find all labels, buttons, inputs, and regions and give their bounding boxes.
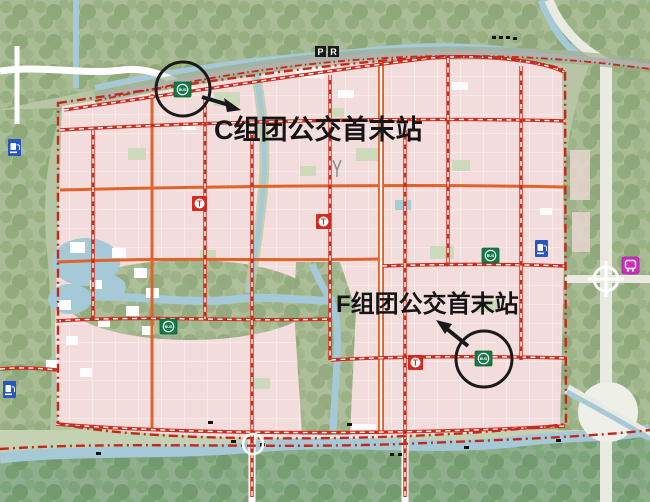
bus-station-icon-east: BUS bbox=[482, 248, 499, 263]
tram-station-label: T bbox=[321, 218, 326, 227]
planning-map: BUS BUS BUS BUS T T bbox=[0, 0, 650, 502]
bus-station-label: BUS bbox=[165, 325, 173, 329]
tram-station-icon-1: T bbox=[192, 196, 207, 211]
park-and-ride-p-icon: P bbox=[315, 46, 326, 57]
river-east-west bbox=[58, 297, 335, 301]
ride-label: R bbox=[330, 47, 337, 57]
tram-station-icon-3: T bbox=[408, 355, 423, 370]
tram-station-icon-2: T bbox=[316, 214, 331, 229]
gas-station-icon-2 bbox=[535, 240, 548, 257]
gas-station-icon-3 bbox=[3, 381, 16, 398]
bus-station-label: BUS bbox=[179, 88, 187, 92]
bus-station-icon-c: BUS bbox=[174, 82, 191, 97]
tram-station-label: T bbox=[197, 200, 202, 209]
park-label: P bbox=[317, 47, 323, 57]
bus-station-icon-west: BUS bbox=[160, 319, 177, 334]
bus-station-label: BUS bbox=[480, 357, 488, 361]
map-canvas: BUS BUS BUS BUS T T bbox=[0, 0, 650, 502]
bus-depot-icon bbox=[622, 257, 639, 274]
bus-station-icon-f: BUS bbox=[475, 351, 492, 366]
tram-station-label: T bbox=[413, 359, 418, 368]
pond-parcel bbox=[395, 200, 411, 210]
c-terminal-label: C组团公交首末站 bbox=[214, 114, 423, 145]
f-terminal-label: F组团公交首末站 bbox=[336, 290, 519, 318]
gas-station-icon-1 bbox=[8, 139, 21, 156]
bus-station-label: BUS bbox=[487, 254, 495, 258]
park-and-ride-r-icon: R bbox=[328, 46, 339, 57]
